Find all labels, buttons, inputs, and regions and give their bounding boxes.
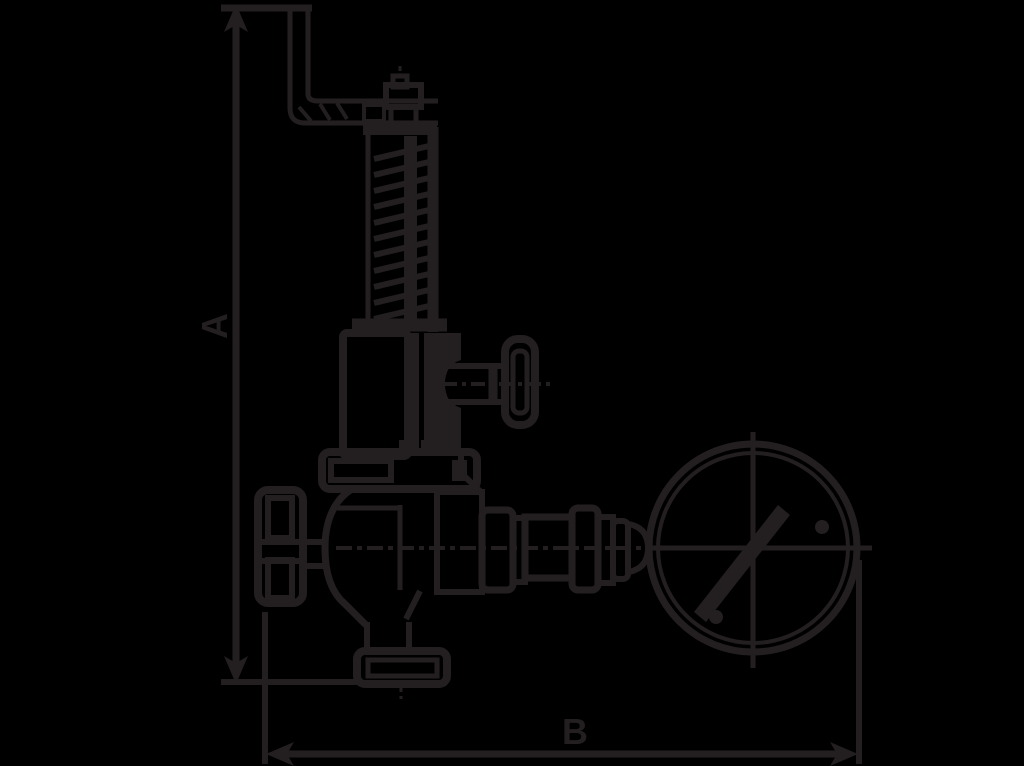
gauge-pivot-dot bbox=[709, 610, 723, 624]
body-bottom-right-slant bbox=[406, 591, 420, 619]
dim-a-label: A bbox=[194, 313, 235, 339]
spring-column bbox=[352, 127, 447, 332]
bonnet-right-shoulder bbox=[434, 333, 461, 452]
inlet-end-flange bbox=[258, 490, 303, 603]
gauge-connection-fittings bbox=[336, 508, 648, 590]
drawing-canvas: A B bbox=[0, 0, 1024, 766]
bonnet-window bbox=[343, 333, 408, 456]
inlet-flange-window-top bbox=[268, 498, 292, 538]
valve-technical-drawing: A B bbox=[0, 0, 1024, 766]
gauge-stop-pin-dot bbox=[815, 520, 829, 534]
bottom-outlet-flange bbox=[357, 651, 447, 699]
flange-window bbox=[331, 461, 391, 480]
spindle-cap bbox=[386, 66, 421, 129]
pressure-gauge-dial bbox=[646, 432, 872, 668]
dimension-a-group: A bbox=[194, 4, 361, 684]
bonnet-spindle-bar-2 bbox=[424, 333, 434, 455]
bonnet-yoke bbox=[343, 333, 461, 456]
lever-slot bbox=[364, 105, 384, 121]
dim-b-label: B bbox=[562, 711, 588, 752]
inlet-flange-window-bottom bbox=[268, 560, 292, 598]
outlet-flange-window bbox=[368, 660, 437, 676]
gauge-needle-icon bbox=[694, 505, 790, 622]
spring-coils bbox=[374, 146, 429, 319]
lever-hatch-marks bbox=[299, 103, 347, 121]
bonnet-spindle-bar-1 bbox=[409, 333, 419, 455]
inlet-flange-outline bbox=[258, 490, 303, 603]
outlet-boss bbox=[437, 492, 482, 592]
